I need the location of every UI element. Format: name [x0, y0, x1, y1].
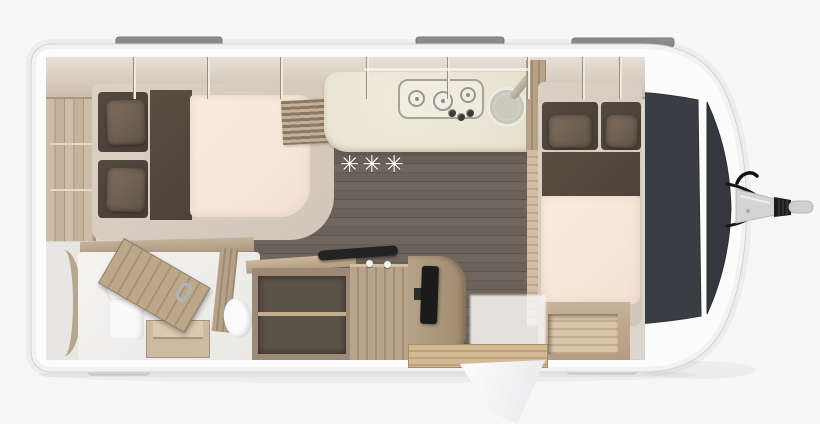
- caravan-floorplan-stage: ✳✳✳: [0, 0, 820, 424]
- sideboard-knob-1: [366, 260, 373, 267]
- chrome-door-handle-icon: [174, 281, 194, 304]
- sideboard-knob-2: [384, 261, 391, 268]
- burner-3: [460, 87, 476, 103]
- locker-divider: [133, 57, 136, 99]
- burner-2: [433, 91, 453, 111]
- front-pillow-2: [604, 113, 638, 148]
- shelf-line: [50, 143, 92, 145]
- tow-hitch: [727, 173, 813, 226]
- locker-divider: [582, 57, 585, 99]
- locker-divider: [207, 57, 210, 99]
- rear-pillow-2: [105, 166, 147, 212]
- locker-divider: [447, 57, 450, 99]
- front-bed-runner: [542, 152, 640, 196]
- hob-knob-2: [457, 113, 465, 121]
- rear-pillow-1: [105, 98, 147, 145]
- tv-screen: [420, 266, 439, 325]
- coupling-housing: [736, 189, 775, 223]
- locker-divider: [619, 57, 622, 99]
- rear-bed-runner: [150, 90, 192, 220]
- interior-area: ✳✳✳: [46, 57, 645, 360]
- front-bed-mattress: [541, 196, 640, 304]
- sideboard-open-shelves: [252, 268, 352, 360]
- coupling-head: [789, 201, 813, 213]
- shelf-line: [50, 189, 92, 191]
- hob-knob-3: [466, 109, 474, 117]
- locker-shelf-edge: [364, 68, 529, 71]
- coupling-bolt: [746, 209, 750, 213]
- front-pillow-1: [548, 114, 593, 149]
- sideboard-block: [350, 264, 412, 360]
- under-bed-storage: [538, 302, 630, 360]
- floor-marker: ✳✳✳: [340, 152, 407, 178]
- locker-divider: [527, 57, 530, 99]
- kitchen-sink: [487, 87, 527, 127]
- rear-side-shelves: [46, 99, 96, 241]
- front-window-panel-1: [636, 92, 701, 324]
- burner-1: [408, 90, 425, 107]
- hob-knob-1: [448, 109, 456, 117]
- louvered-vent: [281, 99, 329, 145]
- locker-divider: [366, 57, 369, 99]
- locker-divider: [280, 57, 283, 99]
